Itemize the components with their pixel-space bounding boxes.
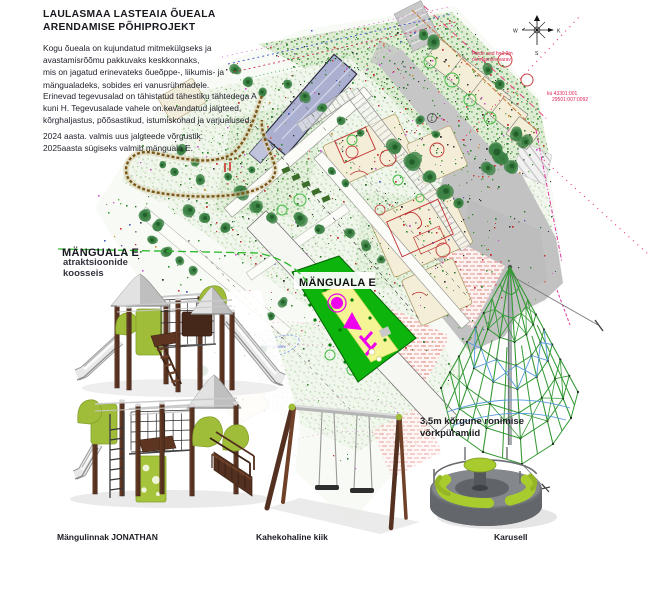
svg-text:olemasolev varav: olemasolev varav [472, 57, 511, 63]
svg-text:MÄNGUALA E: MÄNGUALA E [299, 276, 376, 289]
svg-text:S: S [535, 51, 539, 57]
svg-text:K: K [557, 29, 561, 35]
svg-text:29501:007:0092: 29501:007:0092 [552, 97, 588, 103]
svg-text:W: W [513, 29, 518, 35]
